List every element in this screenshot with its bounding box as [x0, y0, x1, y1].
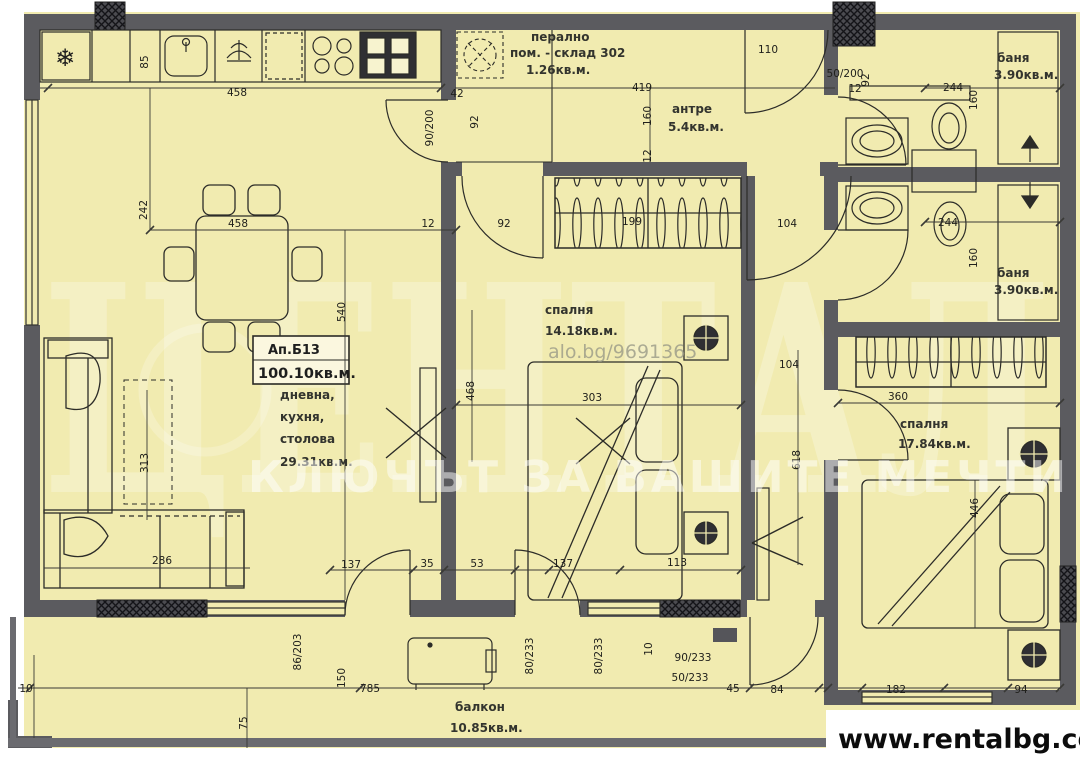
dimension-label: 458: [228, 218, 248, 230]
dimension-label: 137: [553, 558, 573, 570]
dimension-label: 110: [758, 44, 778, 56]
apartment-total-area: 100.10кв.м.: [258, 366, 356, 382]
footer-strip: www.rentalbg.com: [826, 710, 1080, 764]
dimension-label: 242: [138, 200, 150, 220]
dimension-label: 113: [667, 557, 687, 569]
svg-text:дневна,: дневна,: [280, 388, 335, 402]
chair: [203, 322, 235, 352]
wardrobe-bedroom2: [856, 337, 1046, 387]
dimension-label: 458: [227, 87, 247, 99]
floor-plan: ЦЕНТАЛ: [0, 0, 1080, 764]
svg-text:баня: баня: [997, 51, 1029, 65]
apartment-info-box: Ап.Б13 100.10кв.м.: [253, 336, 356, 384]
margin-bottom: [0, 748, 830, 764]
dimension-label: 90/233: [675, 652, 712, 664]
dimension-label: 785: [360, 683, 380, 695]
dimension-label: 160: [642, 106, 654, 126]
svg-text:спалня: спалня: [545, 303, 593, 317]
dimension-label: 94: [1014, 684, 1028, 696]
svg-text:пом. - склад 302: пом. - склад 302: [510, 46, 625, 60]
chair: [292, 247, 322, 281]
dimension-label: 86/203: [292, 634, 304, 671]
dimension-label: 80/233: [593, 638, 605, 675]
dimension-label: 137: [341, 559, 361, 571]
dimension-label: 92: [469, 115, 481, 128]
dimension-label: 313: [139, 453, 151, 473]
svg-text:10.85кв.м.: 10.85кв.м.: [450, 721, 523, 735]
dimension-label: 90/200: [424, 110, 436, 147]
dimension-label: 182: [886, 684, 906, 696]
dimension-label: 150: [336, 668, 348, 688]
dimension-label: 360: [888, 391, 908, 403]
dimension-label: 42: [450, 88, 463, 100]
svg-text:3.90кв.м.: 3.90кв.м.: [994, 283, 1058, 297]
dimension-label: 12: [421, 218, 434, 230]
dimension-label: 92: [860, 73, 872, 86]
svg-text:столова: столова: [280, 432, 335, 446]
margin-top: [0, 0, 1080, 12]
dimension-label: 160: [968, 248, 980, 268]
wardrobe-bedroom1: [555, 178, 741, 248]
fridge-icon: ❄: [55, 44, 75, 72]
chair: [164, 247, 194, 281]
dimension-label: 468: [465, 381, 477, 401]
chair: [248, 185, 280, 215]
svg-text:3.90кв.м.: 3.90кв.м.: [994, 68, 1058, 82]
dimension-label: 12: [848, 83, 861, 95]
svg-text:5.4кв.м.: 5.4кв.м.: [668, 120, 724, 134]
dimension-label: 92: [497, 218, 510, 230]
site-url: www.rentalbg.com: [838, 724, 1080, 755]
floor-plan-drawing: ЦЕНТАЛ: [0, 0, 1080, 764]
oven-appliance: [360, 32, 416, 78]
window-left: [26, 100, 38, 325]
svg-text:кухня,: кухня,: [280, 410, 324, 424]
svg-text:баня: баня: [997, 266, 1029, 280]
balcony-railing-left: [10, 617, 16, 745]
dimension-label: 540: [336, 302, 348, 322]
window-bedroom1-south: [588, 602, 660, 615]
watermark-listing-code: alo.bg/9691365: [548, 341, 697, 363]
apartment-id: Ап.Б13: [268, 343, 320, 358]
svg-text:14.18кв.м.: 14.18кв.м.: [545, 324, 618, 338]
dimension-label: 35: [420, 558, 433, 570]
chair: [203, 185, 235, 215]
dimension-label: 84: [770, 684, 784, 696]
dimension-label: 12: [642, 149, 654, 162]
svg-text:балкон: балкон: [455, 700, 505, 714]
svg-text:1.26кв.м.: 1.26кв.м.: [526, 63, 590, 77]
svg-text:спалня: спалня: [900, 417, 948, 431]
dimension-label: 85: [139, 55, 151, 68]
dimension-label: 286: [152, 555, 172, 567]
dimension-label: 10: [643, 642, 655, 655]
dimension-label: 53: [470, 558, 483, 570]
svg-text:17.84кв.м.: 17.84кв.м.: [898, 437, 971, 451]
dimension-label: 50/200: [827, 68, 864, 80]
dimension-label: 104: [777, 218, 797, 230]
balcony-railing: [8, 738, 828, 747]
window-living-south: [207, 602, 345, 615]
window-bedroom2-south: [862, 692, 992, 703]
dimension-label: 80/233: [524, 638, 536, 675]
svg-text:перално: перално: [531, 30, 589, 44]
svg-text:антре: антре: [672, 102, 712, 116]
dimension-label: 160: [968, 90, 980, 110]
dimension-label: 199: [622, 216, 642, 228]
dimension-label: 419: [632, 82, 652, 94]
dimension-label: 244: [943, 82, 963, 94]
dimension-label: 303: [582, 392, 602, 404]
dimension-label: 104: [779, 359, 799, 371]
dimension-label: 45: [726, 683, 739, 695]
dining-table: [196, 216, 288, 320]
watermark-slogan: КЛЮЧЪТ ЗА ВАШИТЕ МЕЧТИ: [248, 452, 1070, 503]
dimension-label: 50/233: [672, 672, 709, 684]
dimension-label: 75: [238, 716, 250, 729]
dimension-label: 244: [938, 217, 958, 229]
dimension-label: 10: [19, 683, 32, 695]
